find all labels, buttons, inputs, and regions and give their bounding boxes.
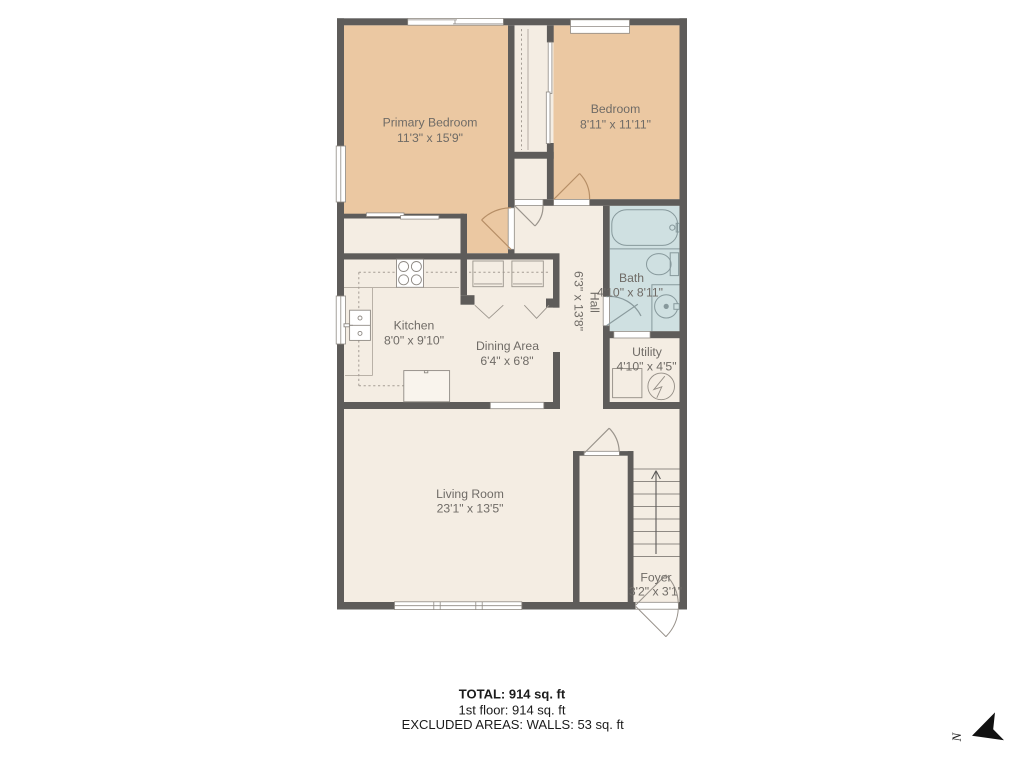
svg-text:Foyer: Foyer [640,571,671,585]
svg-text:1st floor: 914 sq. ft: 1st floor: 914 sq. ft [459,703,566,718]
svg-text:Utility: Utility [632,345,663,359]
svg-text:Hall: Hall [588,292,602,313]
svg-text:Kitchen: Kitchen [394,318,435,332]
svg-text:8'0" x 9'10": 8'0" x 9'10" [384,333,444,347]
svg-text:4'10" x 8'11": 4'10" x 8'11" [597,286,663,300]
svg-text:TOTAL: 914 sq. ft: TOTAL: 914 sq. ft [459,687,566,702]
svg-text:EXCLUDED AREAS: WALLS: 53 sq.: EXCLUDED AREAS: WALLS: 53 sq. ft [402,717,624,732]
svg-text:4'10" x 4'5": 4'10" x 4'5" [616,360,676,374]
svg-text:11'3" x 15'9": 11'3" x 15'9" [397,131,463,145]
svg-text:23'1" x 13'5": 23'1" x 13'5" [437,502,504,516]
svg-text:Dining Area: Dining Area [476,339,539,353]
svg-text:Bedroom: Bedroom [591,102,640,116]
svg-text:N: N [949,732,964,743]
svg-text:Primary Bedroom: Primary Bedroom [383,116,478,130]
svg-text:Bath: Bath [619,271,644,285]
svg-text:3'2" x 3'1": 3'2" x 3'1" [629,584,682,598]
svg-text:Living Room: Living Room [436,487,504,501]
svg-text:6'3" x 13'8": 6'3" x 13'8" [572,271,586,331]
svg-text:8'11" x 11'11": 8'11" x 11'11" [580,118,651,132]
svg-text:6'4" x 6'8": 6'4" x 6'8" [480,354,533,368]
